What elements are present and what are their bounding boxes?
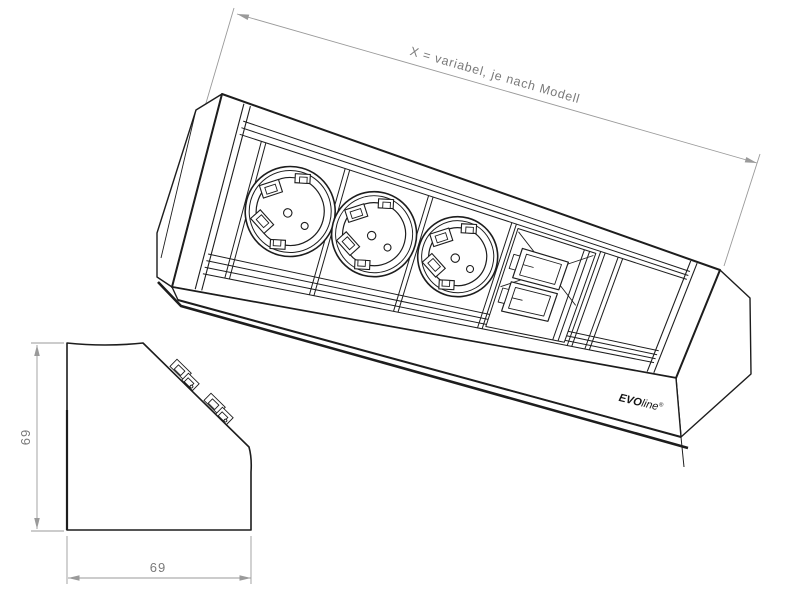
earth-clip-icon — [461, 224, 476, 234]
earth-clip-icon — [378, 199, 393, 209]
profile-view — [67, 343, 251, 530]
height-dimension-label: 69 — [18, 429, 33, 445]
earth-clip-icon — [355, 260, 370, 270]
isometric-view — [157, 94, 751, 467]
arrowhead-right-icon — [240, 575, 252, 581]
technical-drawing: X = variabel, je nach Modell EVOline® — [0, 0, 800, 600]
arrowhead-right-icon — [745, 157, 757, 163]
arrowhead-down-icon — [34, 518, 40, 529]
width-dimension-label: 69 — [150, 560, 166, 575]
height-dimension: 69 — [18, 343, 64, 531]
technical-drawing-canvas: X = variabel, je nach Modell EVOline® — [0, 0, 800, 600]
arrowhead-left-icon — [68, 575, 80, 581]
width-dimension: 69 — [67, 536, 251, 584]
earth-clip-icon — [295, 174, 310, 184]
extension-line-right — [724, 154, 760, 266]
arrowhead-up-icon — [34, 345, 40, 356]
arrowhead-left-icon — [237, 14, 249, 20]
earth-clip-icon — [270, 240, 285, 250]
earth-clip-icon — [439, 280, 454, 290]
profile-outline — [67, 343, 251, 530]
length-dimension-label: X = variabel, je nach Modell — [408, 44, 581, 106]
